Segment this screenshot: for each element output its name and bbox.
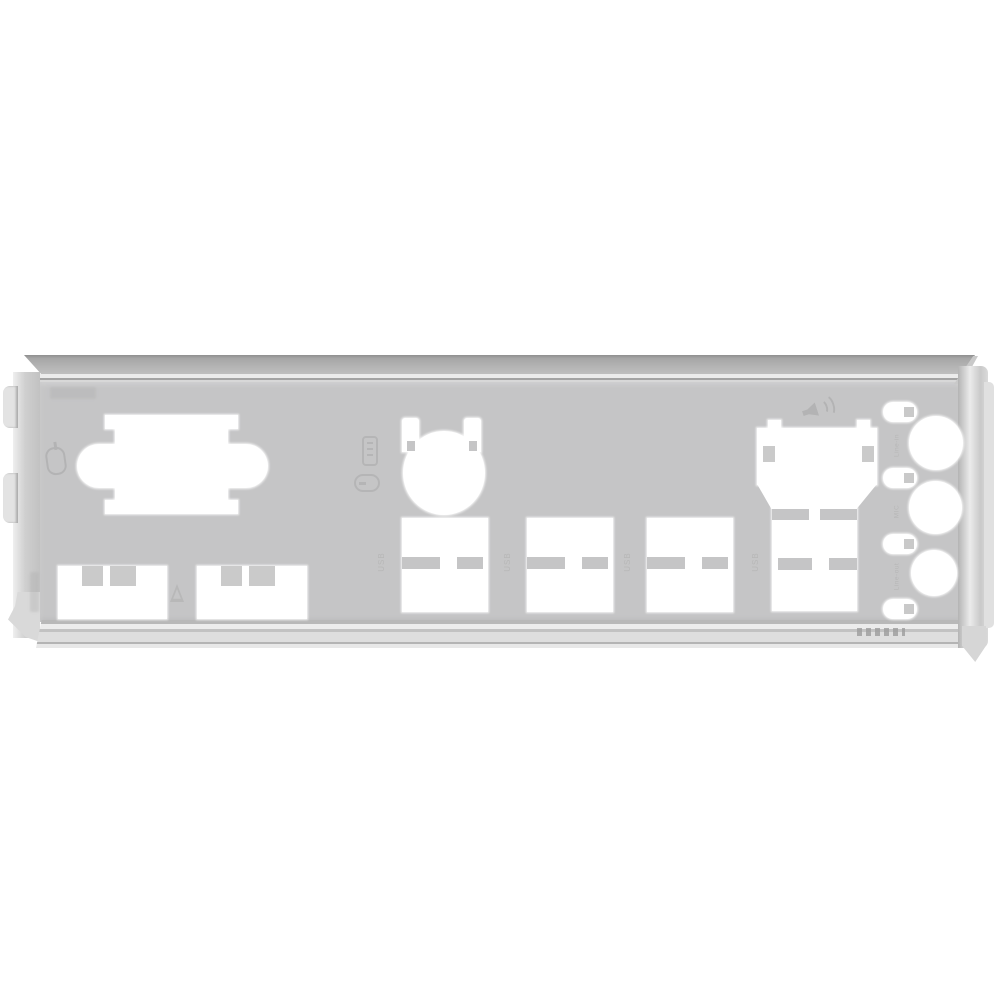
shield-right-bottom-tip bbox=[962, 626, 986, 662]
lan-cutout-clip-left bbox=[763, 446, 775, 462]
embossed-marking-left-edge bbox=[30, 572, 39, 612]
audio-label-mic: MIC bbox=[892, 492, 903, 532]
lan-usb-neck-cutout bbox=[757, 484, 877, 509]
ps2-combo-cutout-bottom-bar bbox=[105, 500, 238, 514]
usb-stack-divider-tab bbox=[457, 557, 483, 569]
grounding-serration bbox=[857, 628, 905, 636]
audio-jack-cutout-3 bbox=[911, 550, 957, 596]
keyboard-icon bbox=[362, 436, 378, 466]
usb-cutout-tab bbox=[110, 566, 136, 586]
keyboard-icon-key bbox=[367, 448, 373, 450]
usb-label-1: USB bbox=[376, 542, 388, 582]
audio-retention-slot-notch bbox=[904, 604, 914, 614]
audio-jack-cutout-1 bbox=[909, 416, 963, 470]
usb-stack-divider-tab bbox=[820, 509, 857, 520]
usb-label-4: USB bbox=[750, 542, 762, 582]
keyboard-icon-key bbox=[367, 454, 373, 456]
audio-retention-slot-notch bbox=[904, 407, 914, 417]
embossed-marking-top-left bbox=[50, 387, 96, 399]
usb-stack-divider-tab bbox=[772, 509, 809, 520]
lan-cutout bbox=[757, 428, 877, 485]
mouse-icon-2-wheel bbox=[359, 482, 366, 485]
shield-left-spring-clip-2 bbox=[3, 473, 18, 523]
lan-cutout-clip-right bbox=[862, 446, 874, 462]
shield-right-fold-outer bbox=[984, 382, 994, 628]
keyboard-icon-key bbox=[367, 442, 373, 444]
audio-label-line-in: Line-in bbox=[892, 426, 903, 466]
shield-left-spring-clip-1 bbox=[3, 386, 18, 428]
usb-stack-divider-tab bbox=[402, 557, 440, 569]
audio-label-line-out: Line-out bbox=[892, 557, 903, 597]
usb-stack-divider-tab bbox=[778, 558, 812, 570]
mouse-icon-2 bbox=[354, 474, 380, 492]
audio-retention-slot-notch bbox=[904, 539, 914, 549]
usb-stack-divider-tab bbox=[829, 558, 857, 570]
io-shield-photo: USB USB USB USB Line-in MIC Line-out bbox=[0, 0, 1000, 1000]
usb-cutout-tab bbox=[82, 566, 103, 586]
usb-label-2: USB bbox=[502, 542, 514, 582]
usb-stack-divider-tab bbox=[647, 557, 685, 569]
usb-stack-divider-tab bbox=[527, 557, 565, 569]
usb-label-3: USB bbox=[622, 542, 634, 582]
shield-bottom-fold bbox=[36, 620, 966, 648]
usb-stack-divider-tab bbox=[702, 557, 728, 569]
ps2-round-cutout-notch bbox=[407, 441, 415, 451]
audio-jack-cutout-2 bbox=[909, 481, 962, 534]
audio-retention-slot-notch bbox=[904, 473, 914, 483]
ps2-round-cutout-notch bbox=[469, 441, 477, 451]
shield-top-fold bbox=[24, 355, 975, 374]
usb-cutout-tab bbox=[221, 566, 242, 586]
ps2-combo-cutout-oval bbox=[77, 444, 268, 488]
usb-cutout-tab bbox=[249, 566, 275, 586]
usb-stack-divider-tab bbox=[582, 557, 608, 569]
